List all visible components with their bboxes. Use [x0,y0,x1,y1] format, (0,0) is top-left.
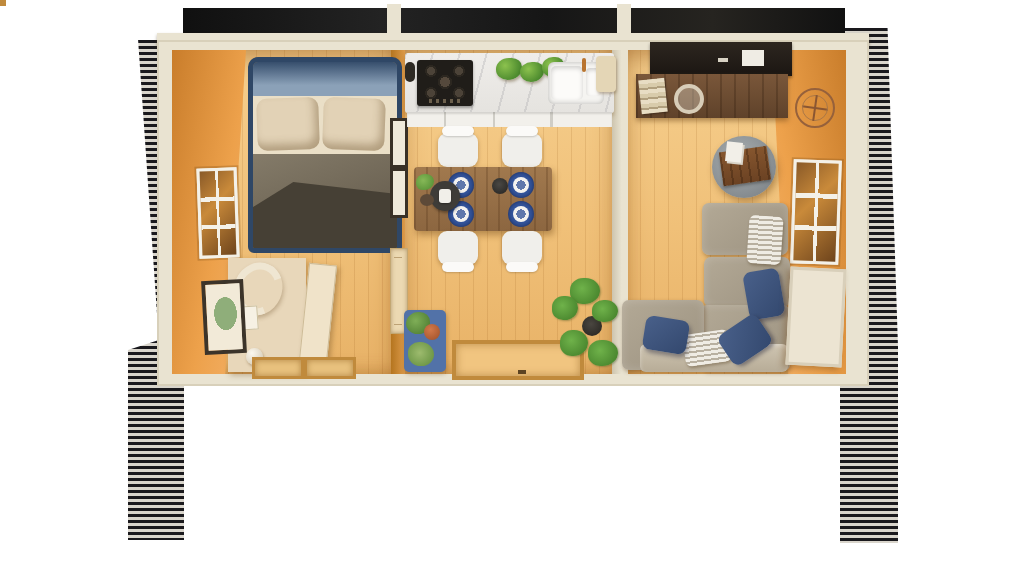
monstera-plant [552,278,618,370]
wall-stud [387,4,401,44]
round-ottoman [712,136,776,198]
media-shelf [650,42,792,76]
leaning-artwork [785,267,846,368]
terracotta-pot [424,324,440,340]
magazines [725,141,743,163]
navy-throw-pillow [642,315,691,355]
blue-placemat-plate [508,172,534,198]
clock-ring [802,95,828,121]
leaf-print [205,283,242,351]
living-room-window [790,159,842,265]
wall-clock [795,88,835,128]
bedroom-window [196,167,239,258]
dining-chair [438,133,478,167]
monstera-leaf [552,296,578,320]
living-door-threshold [0,0,6,6]
bed-pillow [322,97,386,151]
glass-cup [674,84,704,114]
pepper-grinder [405,62,415,82]
wall-picture-frame [390,168,408,218]
blue-placemat-plate [508,201,534,227]
bed-headboard [251,60,399,96]
book-stack [638,78,667,115]
potted-plant [408,342,434,366]
wall-stud [617,4,631,44]
counter-board-towel [596,56,616,92]
dining-chair [502,231,542,265]
monstera-leaf [588,340,618,366]
bedroom-door-threshold [252,357,304,379]
bed-pillow [256,97,320,151]
monstera-leaf [592,300,618,322]
dining-chair [502,133,542,167]
kitchen-cabinets [407,112,612,127]
beach-print [789,270,844,364]
window-panes [793,162,838,261]
sink-basin-large [551,66,583,100]
window-panes [200,170,237,255]
wall-picture-frame [390,118,408,168]
table-bowl [420,194,434,206]
monstera-leaf [560,330,588,356]
walnut-desk [636,74,788,118]
dining-chair [438,231,478,265]
hob-knobs [429,99,461,103]
water-jug [492,178,508,194]
gas-hob [417,60,473,106]
blue-plant-mat [404,310,446,372]
double-bed [248,57,402,253]
bedroom-door-threshold [304,357,356,379]
serving-tray [430,181,460,211]
leaning-picture-frame [201,279,247,355]
faucet [582,58,586,72]
striped-cushion [746,215,783,265]
cabin-cutaway-render [0,0,1024,576]
